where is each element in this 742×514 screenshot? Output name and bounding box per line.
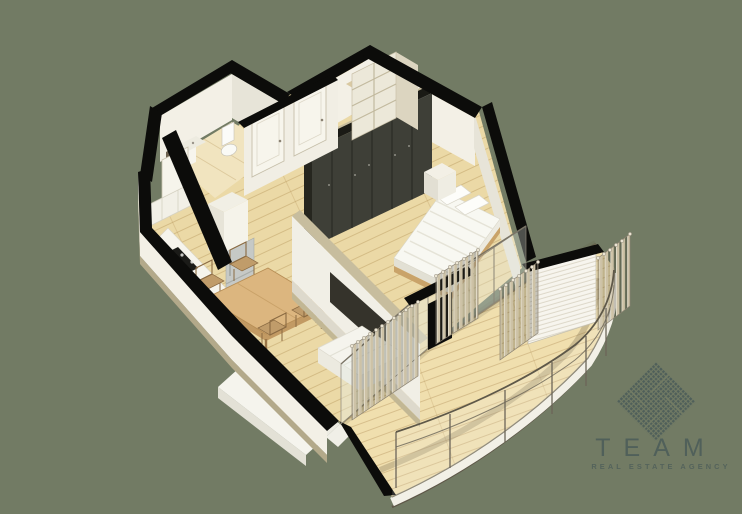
brand-name: TEAM [595, 434, 716, 462]
floor-plan-render: TEAM REAL ESTATE AGENCY [0, 0, 742, 514]
brand-tagline: REAL ESTATE AGENCY [591, 462, 730, 471]
floor-plan-canvas: TEAM REAL ESTATE AGENCY [0, 0, 742, 514]
